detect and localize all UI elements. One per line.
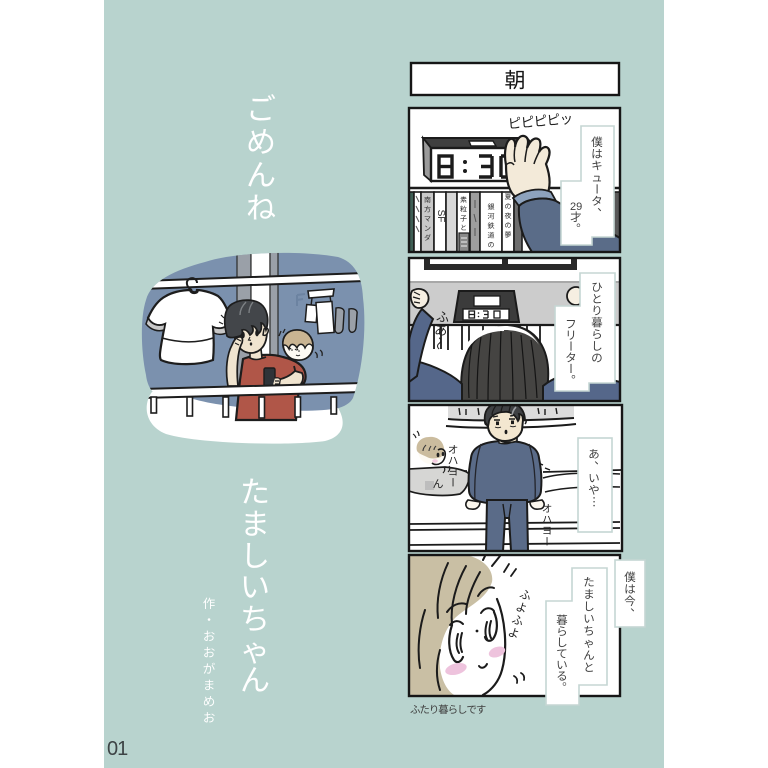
svg-text:29: 29: [570, 201, 582, 213]
svg-text:SF: SF: [435, 210, 446, 223]
svg-text:01: 01: [107, 738, 128, 760]
